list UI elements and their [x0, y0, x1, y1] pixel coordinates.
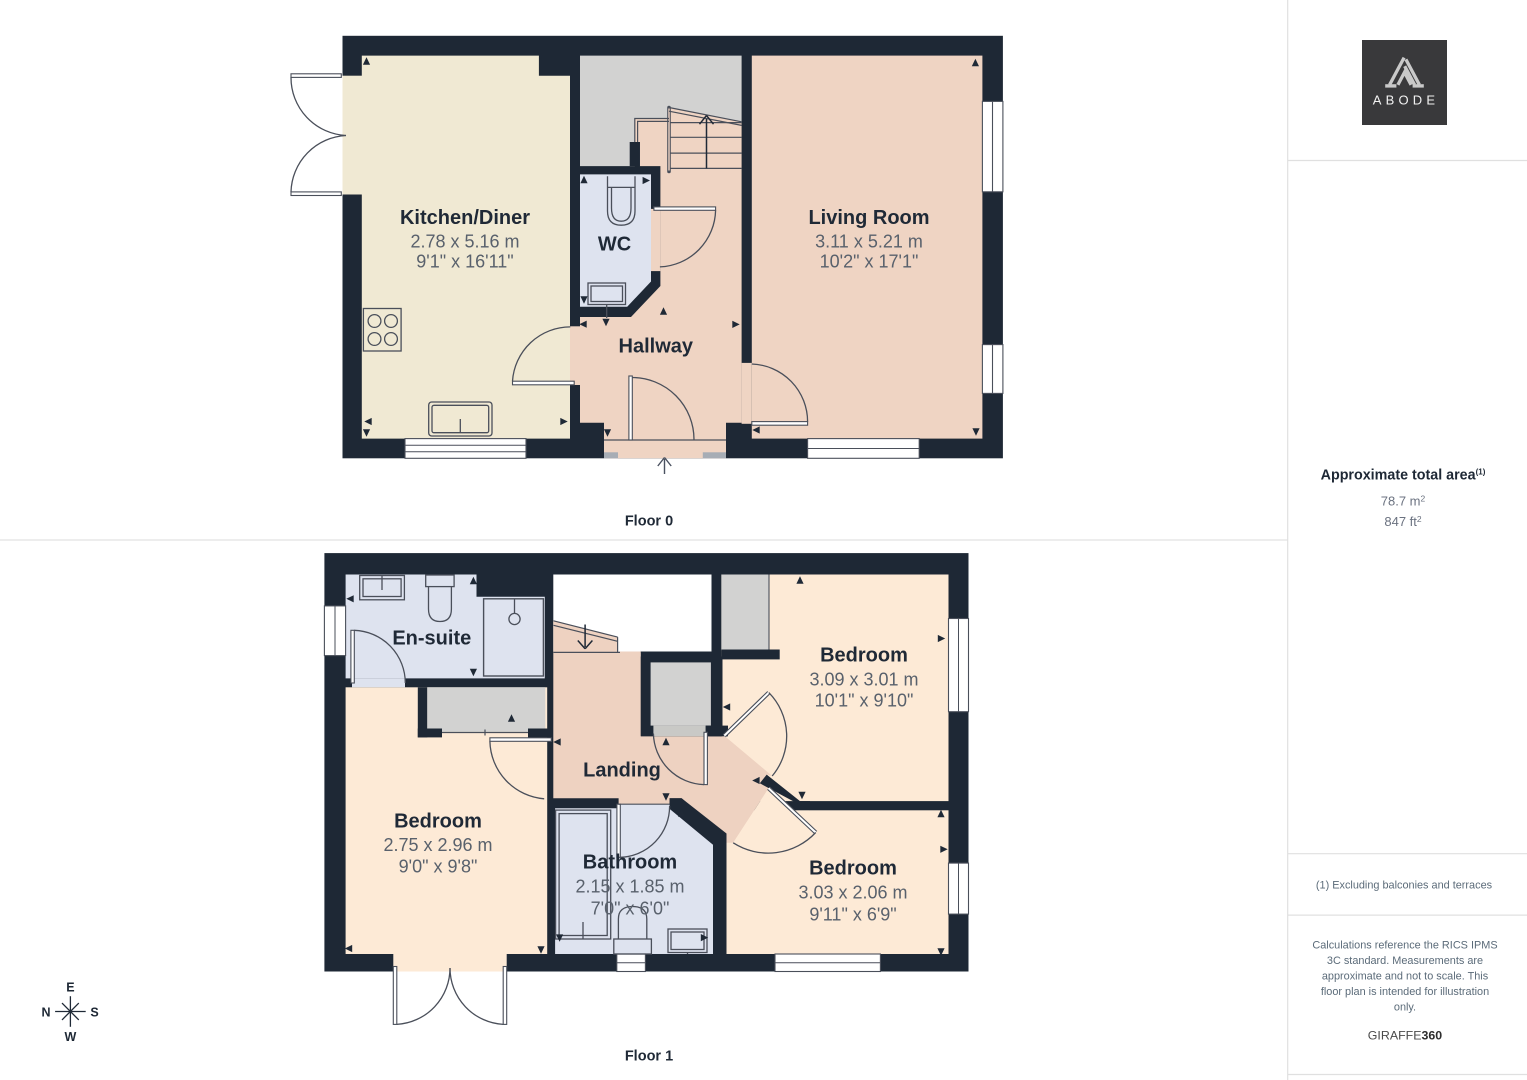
- svg-text:Bathroom: Bathroom: [583, 852, 677, 874]
- svg-text:Bedroom: Bedroom: [809, 858, 897, 880]
- svg-text:7'0" x 6'0": 7'0" x 6'0": [591, 899, 670, 919]
- svg-text:2.15 x 1.85 m: 2.15 x 1.85 m: [575, 877, 684, 897]
- svg-text:9'0" x 9'8": 9'0" x 9'8": [399, 857, 478, 877]
- svg-text:floor plan is intended for ill: floor plan is intended for illustration: [1321, 986, 1489, 998]
- svg-text:approximate and not to scale.: approximate and not to scale. This: [1322, 971, 1489, 983]
- svg-text:Bedroom: Bedroom: [820, 645, 908, 667]
- svg-text:10'2" x 17'1": 10'2" x 17'1": [820, 252, 919, 272]
- svg-text:Floor 0: Floor 0: [625, 514, 673, 530]
- svg-text:N: N: [41, 1005, 50, 1019]
- svg-text:Living Room: Living Room: [808, 207, 929, 229]
- svg-text:WC: WC: [598, 234, 631, 256]
- svg-text:2.78 x 5.16 m: 2.78 x 5.16 m: [410, 232, 519, 252]
- svg-text:GIRAFFE360: GIRAFFE360: [1368, 1029, 1442, 1043]
- svg-text:3.11 x 5.21 m: 3.11 x 5.21 m: [815, 232, 923, 252]
- svg-text:En-suite: En-suite: [392, 628, 471, 650]
- svg-text:9'1" x 16'11": 9'1" x 16'11": [416, 252, 513, 272]
- svg-text:Hallway: Hallway: [619, 336, 694, 358]
- svg-text:S: S: [90, 1005, 98, 1019]
- svg-text:3C standard. Measurements are: 3C standard. Measurements are: [1327, 955, 1483, 967]
- svg-text:W: W: [64, 1030, 76, 1044]
- svg-text:9'11" x 6'9": 9'11" x 6'9": [809, 905, 896, 925]
- svg-text:10'1" x 9'10": 10'1" x 9'10": [815, 691, 914, 711]
- svg-text:2.75 x 2.96 m: 2.75 x 2.96 m: [383, 835, 492, 855]
- svg-text:3.03 x 2.06 m: 3.03 x 2.06 m: [798, 883, 907, 903]
- svg-text:ABODE: ABODE: [1373, 93, 1440, 108]
- svg-text:Kitchen/Diner: Kitchen/Diner: [400, 207, 530, 229]
- svg-text:Floor 1: Floor 1: [625, 1049, 673, 1065]
- svg-text:Calculations reference the RIC: Calculations reference the RICS IPMS: [1312, 940, 1497, 952]
- svg-text:(1) Excluding balconies and te: (1) Excluding balconies and terraces: [1316, 880, 1493, 892]
- svg-text:3.09 x 3.01 m: 3.09 x 3.01 m: [809, 670, 918, 690]
- svg-text:78.7 m2: 78.7 m2: [1381, 494, 1426, 509]
- svg-text:E: E: [66, 981, 74, 995]
- svg-text:Bedroom: Bedroom: [394, 811, 482, 833]
- svg-text:Landing: Landing: [583, 760, 661, 782]
- svg-text:Approximate total area(1): Approximate total area(1): [1321, 468, 1486, 484]
- svg-text:847 ft2: 847 ft2: [1384, 514, 1422, 529]
- svg-text:only.: only.: [1394, 1002, 1416, 1014]
